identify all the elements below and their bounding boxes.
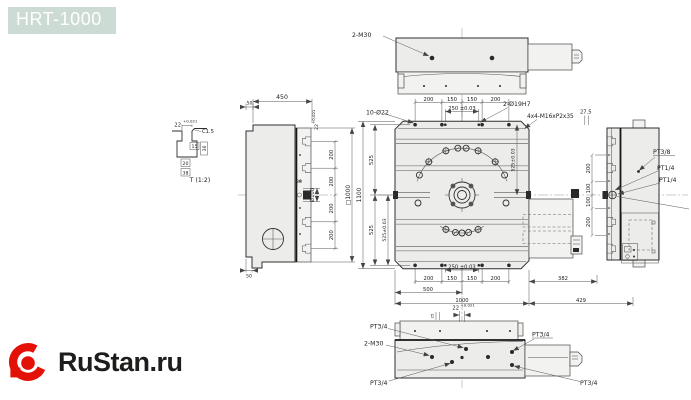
worm-housing-block — [523, 189, 582, 258]
label-2d19h7: 2-Ø19H7 — [503, 100, 531, 108]
dim-200: 200 — [424, 97, 434, 103]
dim-200: 200 — [424, 276, 434, 282]
detail-dim-20: 20 — [183, 161, 189, 167]
m30-hole — [490, 56, 495, 61]
model-title-chip: HRT-1000 — [8, 7, 116, 34]
label-2m30-bottom: 2-M30 — [364, 341, 383, 348]
top-view-housing — [396, 38, 528, 72]
bottom-slot-dims: 22 +0.021 25 — [430, 303, 476, 323]
dim-150: 150 — [467, 276, 477, 282]
detail-dim-38: 38 — [183, 170, 189, 176]
dim-525-bottom: 525 — [369, 225, 375, 235]
detail-chamfer: C1.5 — [202, 129, 214, 135]
dim-250-top: 250 ±0.03 — [448, 106, 475, 112]
dim-22-slot: 22 +0.021 — [311, 109, 320, 130]
brand-logo[interactable]: RuStan.ru — [6, 338, 183, 386]
pitch-200: 200 — [329, 230, 335, 240]
dim-450: 450 — [276, 94, 288, 101]
bottom-view-band — [400, 321, 518, 340]
detail-tol-22: +0.021 — [183, 119, 198, 124]
dim-50-bottom: 50 — [246, 274, 252, 280]
dim-30: 30 — [296, 179, 302, 185]
label-10d22: 10-Ø22 — [366, 109, 389, 117]
dim-250-bottom: 250 ±0.03 — [448, 264, 475, 270]
bottom-dim-25: 25 — [430, 313, 435, 318]
left-side-view: 450 50 50 22 +0.021 30 Ø100 — [240, 94, 355, 280]
m30-hole — [486, 355, 490, 359]
bottom-dim-22: 22 — [452, 306, 459, 312]
bottom-view: 22 +0.021 25 PT3/4 2-M30 PT3/4 PT3/4 PT3… — [364, 303, 598, 388]
bottom-view-body — [395, 340, 525, 378]
bottom-view-motor — [525, 345, 570, 376]
top-view-motor-block — [528, 44, 572, 70]
label-pt14-a: PT1/4 — [657, 165, 675, 172]
detail-dim-15: 15 — [192, 144, 198, 150]
dim-200: 200 — [586, 163, 592, 173]
page-title: HRT-1000 — [16, 9, 102, 29]
plan-bottom-dims: 250 ±0.03 200 150 150 200 382 500 1000 4… — [395, 264, 633, 306]
brand-logo-text: RuStan.ru — [58, 347, 183, 378]
dim-150: 150 — [467, 97, 477, 103]
dim-150: 150 — [447, 97, 457, 103]
detail-t-section: 22 +0.021 C1.5 15 36 20 38 T (1:2) — [172, 119, 214, 185]
dim-200: 200 — [491, 97, 501, 103]
pitch-200: 200 — [329, 203, 335, 213]
dim-100: 100 — [586, 197, 592, 207]
dim-d100: Ø100 — [309, 188, 316, 202]
label-pt34-top-left: PT3/4 — [370, 324, 388, 331]
label-pt34-bottom-left: PT3/4 — [370, 380, 388, 387]
top-view-connector — [572, 50, 582, 63]
dim-382: 382 — [558, 276, 568, 282]
label-pt34-top-right: PT3/4 — [532, 332, 550, 339]
label-m16: 4x4-M16xP2x35 — [527, 114, 574, 120]
detail-title: T (1:2) — [189, 177, 211, 184]
dim-525-tol-left: 525±0.03 — [382, 218, 388, 241]
m30-hole — [430, 355, 434, 359]
pitch-200: 200 — [329, 177, 335, 187]
dim-1100: 1100 — [357, 187, 363, 202]
dim-150: 150 — [447, 276, 457, 282]
label-pt14-b: PT1/4 — [659, 177, 677, 184]
dim-500: 500 — [423, 287, 433, 293]
svg-text:+0.021: +0.021 — [311, 109, 316, 124]
dim-525-tol-right: 525±0.03 — [511, 148, 517, 171]
top-view: 2-M30 — [352, 32, 582, 94]
dim-100: 100 — [586, 184, 592, 194]
label-pt34-bottom-right: PT3/4 — [580, 380, 598, 387]
right-side-view: PT3/8 PT1/4 PT1/4 200 100 100 200 — [586, 120, 689, 267]
bottom-tol-22: +0.021 — [461, 303, 476, 308]
detail-dim-22: 22 — [174, 123, 181, 129]
detail-dim-36: 36 — [202, 146, 208, 152]
dim-429: 429 — [576, 298, 586, 304]
label-pt38: PT3/8 — [653, 149, 671, 156]
dim-sq1000: □1000 — [346, 185, 352, 206]
plan-base — [395, 121, 529, 268]
m30-hole — [430, 56, 435, 61]
left-view-saddle — [246, 125, 295, 268]
right-view-body — [607, 128, 659, 260]
side-clamp-bolt — [603, 191, 609, 199]
dim-275: 27.5 — [580, 110, 592, 116]
top-2m30-label: 2-M30 — [352, 32, 371, 39]
dim-50-top: 50 — [247, 101, 253, 107]
dim-200: 200 — [586, 217, 592, 227]
pitch-200: 200 — [329, 150, 335, 160]
dim-525-top: 525 — [369, 155, 375, 165]
dim-200: 200 — [491, 276, 501, 282]
brand-logo-icon — [6, 340, 50, 384]
